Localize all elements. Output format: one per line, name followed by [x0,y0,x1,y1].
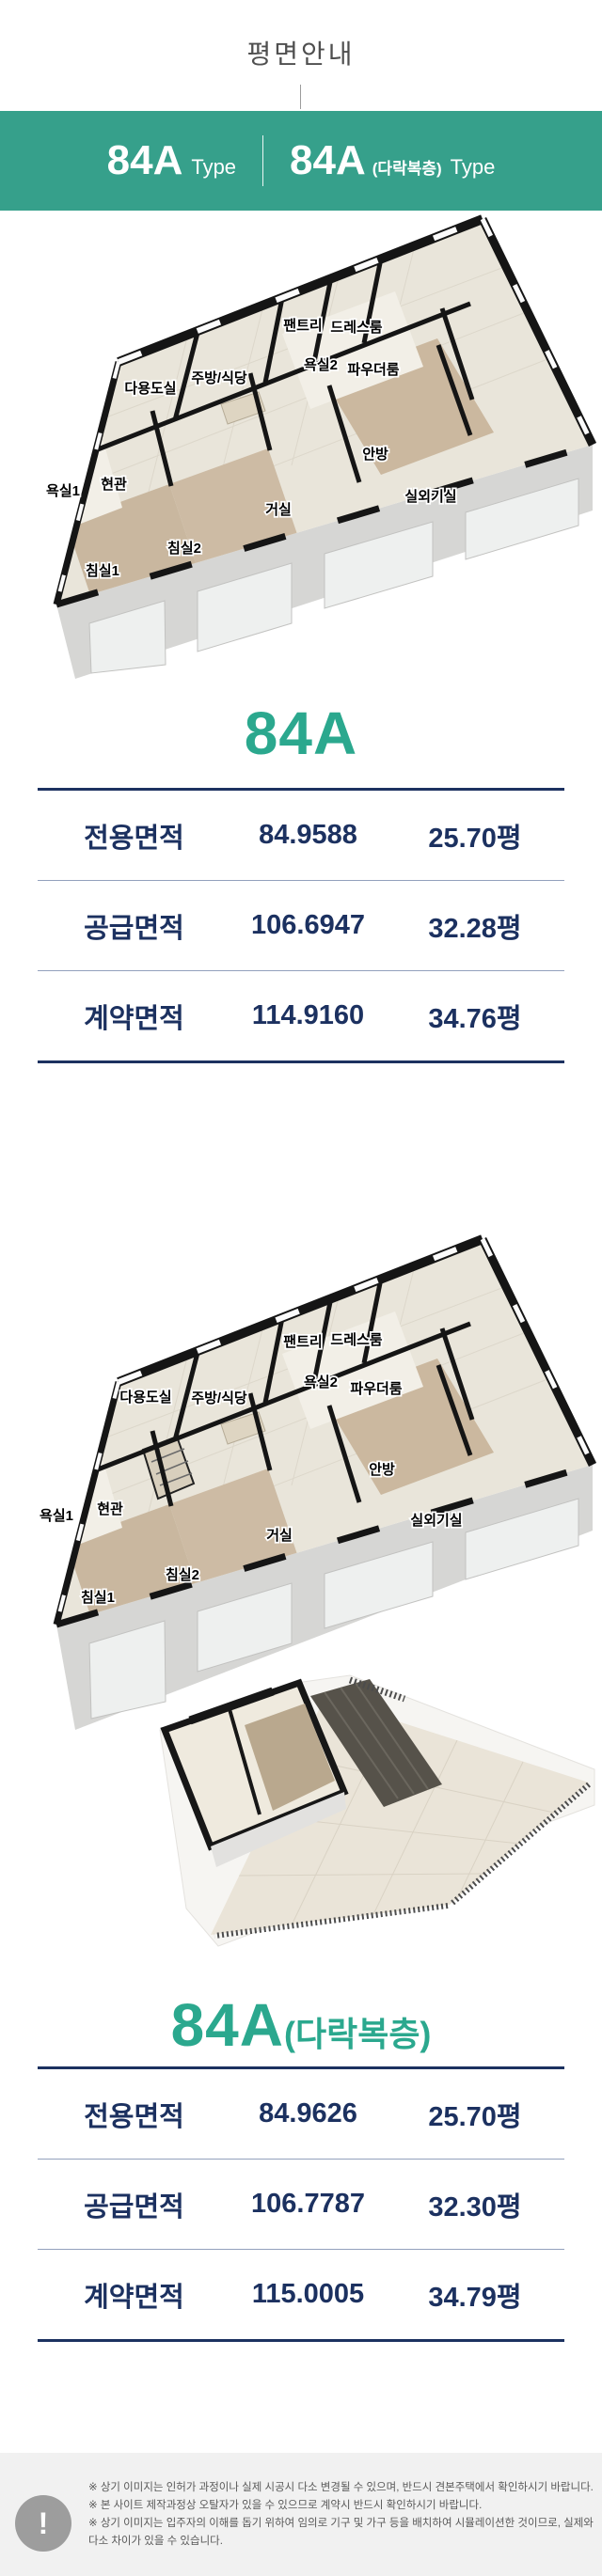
room-label: 다용도실 [124,381,176,397]
type-suffix: Type [451,155,496,180]
area-table-84a-duplex: 전용면적 84.9626 25.70평 공급면적 106.7787 32.30평… [38,2066,564,2342]
area-value: 106.6947 [230,910,386,941]
type-code: 84A [107,140,183,181]
area-value: 114.9160 [230,1000,386,1031]
area-value: 115.0005 [230,2279,386,2310]
disclaimer-notes: ※ 상기 이미지는 인허가 과정이나 실제 시공시 다소 변경될 수 있으며, … [88,2479,594,2551]
area-pyeong: 32.28평 [386,906,564,946]
area-table-84a: 전용면적 84.9588 25.70평 공급면적 106.6947 32.28평… [38,788,564,1063]
floor-plan-84a-isometric: 팬트리 드레스룸 욕실2 파우더룸 주방/식당 다용도실 욕실1 현관 안방 거… [0,183,602,696]
section-title-84a: 84A [0,703,602,763]
room-label: 실외기실 [410,1512,462,1529]
room-label: 현관 [97,1501,123,1517]
area-pyeong: 32.30평 [386,2185,564,2224]
disclaimer-line: ※ 상기 이미지는 인허가 과정이나 실제 시공시 다소 변경될 수 있으며, … [88,2479,594,2497]
room-label: 실외기실 [404,488,456,505]
room-label: 욕실1 [46,483,80,499]
room-label: 다용도실 [119,1390,171,1406]
floor-plan-page: 평면안내 84A Type 84A (다락복층) Type [0,0,602,2576]
area-value: 106.7787 [230,2189,386,2220]
title-tick-line [300,85,301,109]
page-title: 평면안내 [0,34,602,71]
area-label: 공급면적 [38,906,230,946]
room-label: 팬트리 [283,1334,322,1350]
table-row: 전용면적 84.9626 25.70평 [38,2069,564,2159]
table-row: 계약면적 115.0005 34.79평 [38,2249,564,2339]
banner-divider [262,135,263,186]
type-paren: (다락복층) [372,155,442,179]
area-pyeong: 34.76평 [386,997,564,1036]
section-title-84a-duplex: 84A(다락복층) [0,1995,602,2055]
room-label: 주방/식당 [191,1390,247,1406]
area-value: 84.9626 [230,2098,386,2129]
table-row: 공급면적 106.7787 32.30평 [38,2159,564,2249]
area-label: 공급면적 [38,2185,230,2224]
room-label: 안방 [369,1461,395,1478]
area-label: 전용면적 [38,816,230,856]
room-label: 거실 [265,502,292,518]
room-label: 침실2 [166,1567,199,1583]
room-label: 욕실1 [40,1508,73,1524]
area-label: 계약면적 [38,2275,230,2315]
type-code: 84A [290,140,366,181]
disclaimer-line: ※ 상기 이미지는 입주자의 이해를 돕기 위하여 임의로 기구 및 가구 등을… [88,2515,594,2551]
disclaimer-line: ※ 본 사이트 제작과정상 오탈자가 있을 수 있으므로 계약시 반드시 확인하… [88,2497,594,2515]
table-row: 공급면적 106.6947 32.28평 [38,880,564,970]
tab-84a-type[interactable]: 84A Type [107,140,236,181]
room-label: 파우더룸 [350,1381,402,1397]
room-label: 현관 [101,477,127,493]
room-label: 주방/식당 [191,369,247,386]
room-label: 드레스룸 [330,320,382,336]
room-label: 팬트리 [283,318,322,334]
area-pyeong: 25.70평 [386,816,564,856]
area-label: 전용면적 [38,2095,230,2134]
room-label: 안방 [362,446,388,463]
room-label: 욕실2 [304,357,338,373]
table-row: 전용면적 84.9588 25.70평 [38,791,564,880]
table-row: 계약면적 114.9160 34.76평 [38,970,564,1060]
area-label: 계약면적 [38,997,230,1036]
room-label: 파우더룸 [347,362,399,378]
area-pyeong: 34.79평 [386,2275,564,2315]
room-label: 거실 [266,1528,293,1544]
room-label: 침실2 [167,541,201,557]
area-value: 84.9588 [230,820,386,851]
room-label: 침실1 [81,1590,115,1606]
disclaimer-footer: ! ※ 상기 이미지는 인허가 과정이나 실제 시공시 다소 변경될 수 있으며… [0,2453,602,2576]
type-suffix: Type [191,155,236,180]
exclamation-icon: ! [15,2495,71,2552]
attic-floor-plan-isometric [132,1672,602,1965]
area-pyeong: 25.70평 [386,2095,564,2134]
tab-84a-duplex-type[interactable]: 84A (다락복층) Type [290,140,495,181]
room-label: 침실1 [86,563,119,579]
room-label: 드레스룸 [330,1332,382,1348]
room-label: 욕실2 [304,1374,338,1390]
